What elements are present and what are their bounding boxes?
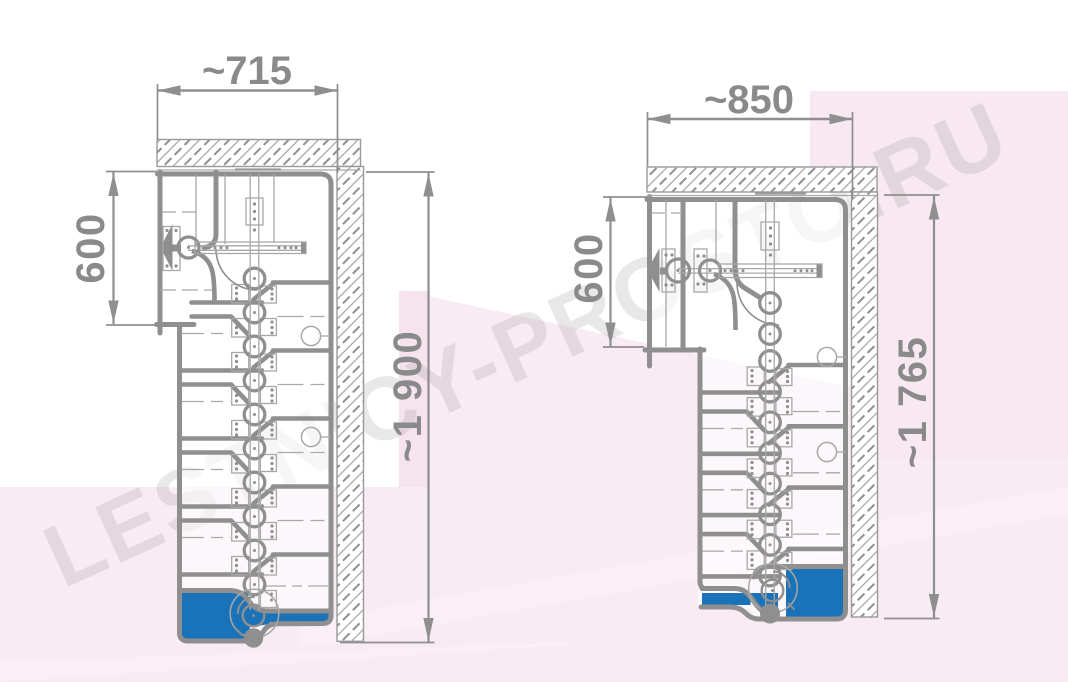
svg-text:600: 600 [567,232,611,303]
svg-text:~1 765: ~1 765 [891,336,935,468]
svg-text:~1 900: ~1 900 [386,330,430,462]
svg-text:~715: ~715 [202,49,292,93]
svg-text:~850: ~850 [704,78,794,122]
svg-text:600: 600 [69,212,113,283]
